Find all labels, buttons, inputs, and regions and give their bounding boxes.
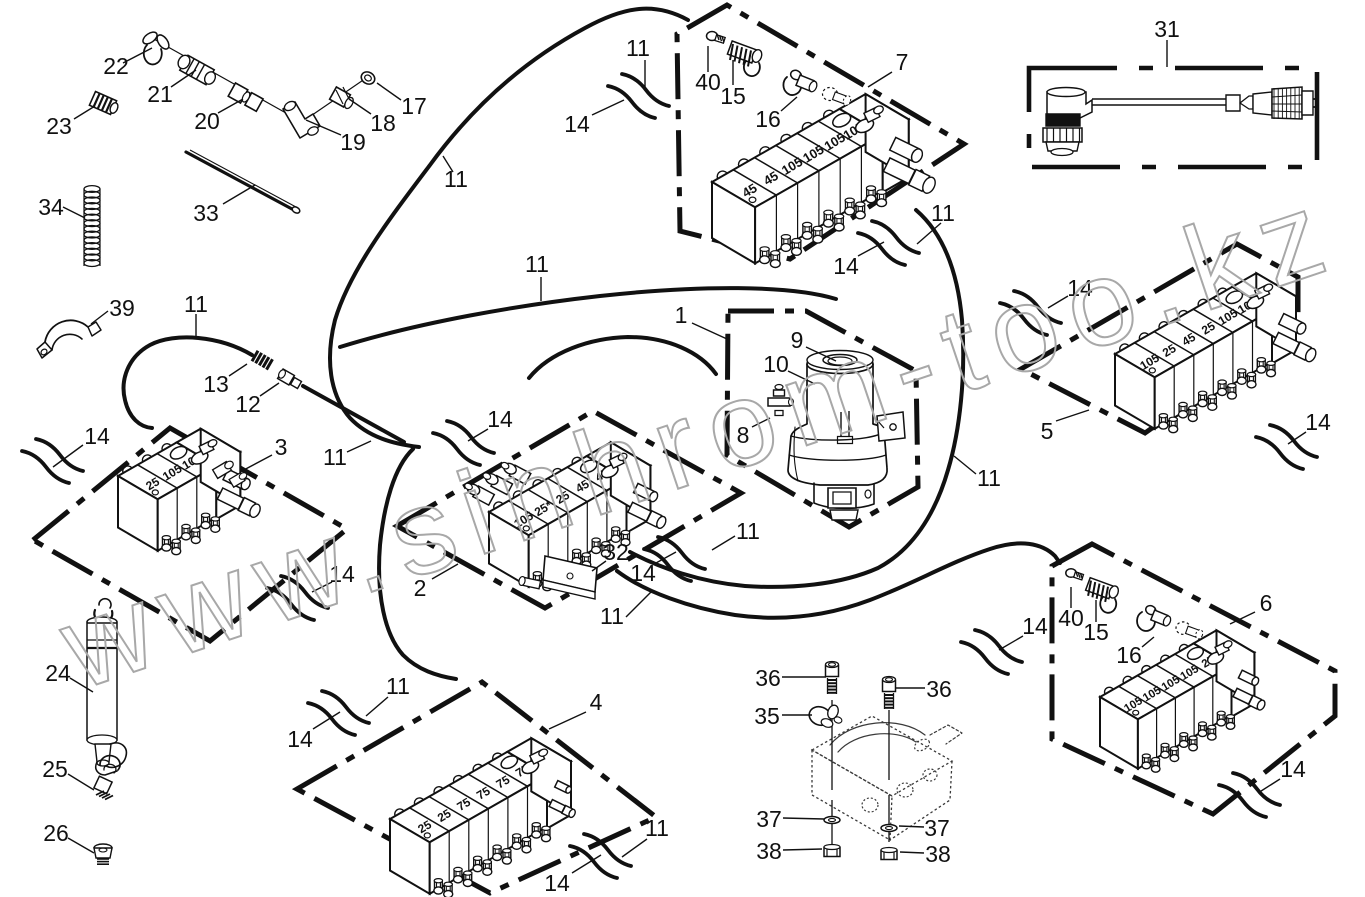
- svg-text:15: 15: [1083, 619, 1109, 645]
- svg-text:38: 38: [756, 838, 782, 864]
- svg-text:16: 16: [1116, 642, 1142, 668]
- svg-text:40: 40: [695, 69, 721, 95]
- svg-text:14: 14: [564, 111, 590, 137]
- svg-text:11: 11: [600, 603, 624, 629]
- svg-text:19: 19: [340, 129, 366, 155]
- svg-text:11: 11: [931, 200, 955, 226]
- svg-text:39: 39: [109, 295, 135, 321]
- svg-text:21: 21: [147, 81, 173, 107]
- svg-text:37: 37: [756, 806, 782, 832]
- svg-text:32: 32: [603, 539, 629, 565]
- svg-text:14: 14: [287, 726, 313, 752]
- svg-text:13: 13: [203, 371, 229, 397]
- svg-text:14: 14: [1022, 613, 1048, 639]
- svg-text:18: 18: [370, 110, 396, 136]
- svg-text:20: 20: [194, 108, 220, 134]
- svg-text:6: 6: [1260, 590, 1273, 616]
- svg-text:14: 14: [833, 253, 859, 279]
- svg-text:37: 37: [924, 815, 950, 841]
- svg-text:12: 12: [235, 391, 261, 417]
- svg-text:11: 11: [525, 251, 549, 277]
- svg-text:11: 11: [626, 35, 650, 61]
- svg-text:38: 38: [925, 841, 951, 867]
- svg-text:17: 17: [401, 93, 427, 119]
- svg-text:31: 31: [1154, 16, 1180, 42]
- svg-text:11: 11: [386, 673, 410, 699]
- svg-text:1: 1: [675, 302, 688, 328]
- svg-text:34: 34: [38, 194, 64, 220]
- svg-text:11: 11: [323, 444, 347, 470]
- svg-text:11: 11: [736, 518, 760, 544]
- svg-text:14: 14: [84, 423, 110, 449]
- svg-text:25: 25: [42, 756, 68, 782]
- svg-text:26: 26: [43, 820, 69, 846]
- svg-text:22: 22: [103, 53, 129, 79]
- svg-text:4: 4: [590, 689, 603, 715]
- svg-text:11: 11: [977, 465, 1001, 491]
- svg-text:36: 36: [926, 676, 952, 702]
- svg-text:14: 14: [630, 560, 656, 586]
- svg-text:3: 3: [275, 434, 288, 460]
- svg-text:40: 40: [1058, 605, 1084, 631]
- svg-text:14: 14: [1305, 409, 1331, 435]
- svg-text:11: 11: [645, 815, 669, 841]
- svg-text:24: 24: [45, 660, 71, 686]
- svg-text:14: 14: [1280, 756, 1306, 782]
- svg-text:16: 16: [755, 106, 781, 132]
- svg-text:11: 11: [444, 166, 468, 192]
- svg-text:14: 14: [487, 406, 513, 432]
- svg-text:5: 5: [1041, 418, 1054, 444]
- svg-text:35: 35: [754, 703, 780, 729]
- svg-text:7: 7: [896, 49, 909, 75]
- svg-text:23: 23: [46, 113, 72, 139]
- svg-text:14: 14: [544, 870, 570, 896]
- svg-text:33: 33: [193, 200, 219, 226]
- svg-text:36: 36: [755, 665, 781, 691]
- svg-text:15: 15: [720, 83, 746, 109]
- svg-text:11: 11: [184, 291, 208, 317]
